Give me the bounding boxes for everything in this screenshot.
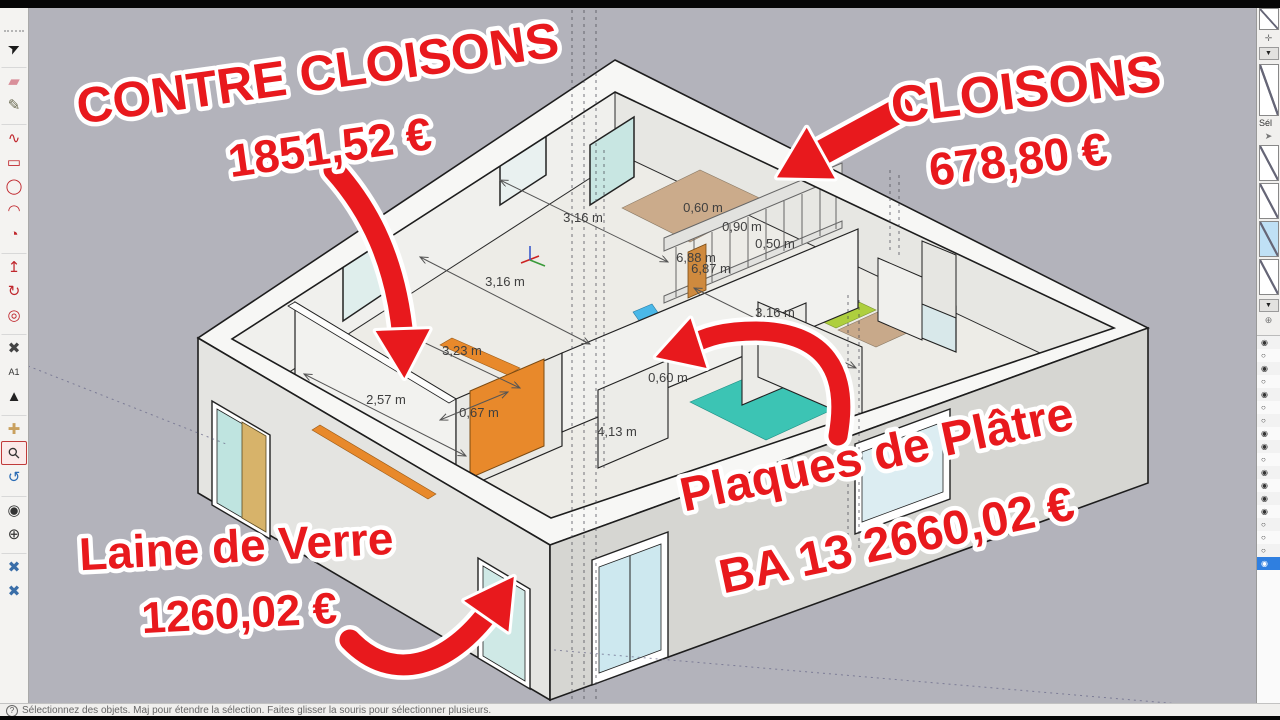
push-pull-icon: ↥: [8, 260, 21, 275]
dimension-label: 0,60 m: [648, 370, 688, 385]
tray-thumbnail[interactable]: [1259, 8, 1279, 30]
move-icon: ✛: [1265, 32, 1273, 45]
scene-thumbnail-3[interactable]: [1259, 221, 1279, 257]
zoom-icon: ⚲: [5, 444, 23, 462]
circle-icon: ◯: [6, 179, 23, 194]
arc-icon: ◠: [7, 203, 20, 218]
tag-row-13[interactable]: ◉: [1257, 492, 1280, 505]
position-camera-tool[interactable]: ⊕: [1, 522, 27, 546]
tape-measure-tool[interactable]: ✖: [1, 334, 27, 360]
large-tool-set-toolbar: ➤▰✎∿▭◯◠◔↥↻◎✖A1▲✚⚲↺◉⊕✖✖: [0, 8, 29, 706]
circle-tool[interactable]: ◯: [1, 174, 27, 198]
pan-icon: ✚: [8, 422, 21, 437]
eye-visible-icon[interactable]: ◉: [1261, 442, 1268, 451]
tag-row-6[interactable]: ○: [1257, 401, 1280, 414]
eye-visible-icon[interactable]: ◉: [1261, 364, 1268, 373]
dimension-label: 3,23 m: [442, 343, 482, 358]
tag-row-12[interactable]: ◉: [1257, 479, 1280, 492]
annotation-price: 1260,02 €: [140, 584, 338, 643]
tag-row-1[interactable]: ◉: [1257, 336, 1280, 349]
position-camera-icon: ⊕: [8, 527, 21, 542]
tag-row-2[interactable]: ○: [1257, 349, 1280, 362]
eye-hidden-icon[interactable]: ○: [1261, 520, 1266, 529]
rectangle-icon: ▭: [7, 155, 21, 170]
dimension-label: 0,67 m: [459, 405, 499, 420]
eraser-icon: ▰: [8, 74, 20, 89]
tag-row-15[interactable]: ○: [1257, 518, 1280, 531]
eraser-tool[interactable]: ▰: [1, 67, 27, 93]
tag-row-11[interactable]: ◉: [1257, 466, 1280, 479]
eye-visible-icon[interactable]: ◉: [1261, 507, 1268, 516]
annotation-price: 678,80 €: [926, 122, 1110, 195]
eye-hidden-icon[interactable]: ○: [1261, 416, 1266, 425]
tag-row-7[interactable]: ○: [1257, 414, 1280, 427]
tray-dropdown-button[interactable]: ▼: [1259, 47, 1279, 60]
dimension-label: 2,57 m: [366, 392, 406, 407]
pie-tool[interactable]: ◔: [1, 222, 27, 246]
tape-measure-icon: ✖: [8, 341, 21, 356]
paint-icon: ✎: [8, 98, 21, 113]
eye-visible-icon[interactable]: ◉: [1261, 468, 1268, 477]
bottom-letterbox-bar: [0, 716, 1280, 720]
sketchup-window: 3,16 m3,16 m3,16 m0,60 m0,90 m0,50 m6,88…: [0, 0, 1280, 720]
section-plane-icon: ✖: [8, 560, 21, 575]
status-bar: ? Sélectionnez des objets. Maj pour éten…: [0, 703, 1280, 716]
tags-visibility-list: ◉○◉○◉○○◉◉○◉◉◉◉○○○◉: [1257, 335, 1280, 706]
zoom-tool[interactable]: ⚲: [1, 441, 27, 465]
dimension-label: 3,16 m: [485, 274, 525, 289]
freehand-line-tool[interactable]: ∿: [1, 124, 27, 150]
tag-row-16[interactable]: ○: [1257, 531, 1280, 544]
push-pull-tool[interactable]: ↥: [1, 253, 27, 279]
dimension-label: 0,60 m: [683, 200, 723, 215]
tag-row-4[interactable]: ○: [1257, 375, 1280, 388]
eye-visible-icon[interactable]: ◉: [1261, 481, 1268, 490]
eye-visible-icon[interactable]: ◉: [1261, 390, 1268, 399]
section-plane-tool[interactable]: ✖: [1, 553, 27, 579]
tag-row-17[interactable]: ○: [1257, 544, 1280, 557]
annotation-cloisons: CLOISONS 678,80 €: [888, 45, 1165, 196]
select-tool[interactable]: ➤: [1, 36, 27, 60]
annotation-title: CONTRE CLOISONS: [73, 12, 562, 135]
eye-hidden-icon[interactable]: ○: [1261, 546, 1266, 555]
eye-hidden-icon[interactable]: ○: [1261, 377, 1266, 386]
section-settings-icon: ✖: [8, 584, 21, 599]
look-around-tool[interactable]: ◉: [1, 496, 27, 522]
text-icon: A1: [8, 368, 19, 377]
dimension-label: 0,50 m: [755, 236, 795, 251]
circle-plus-icon[interactable]: ⊕: [1265, 314, 1273, 327]
tag-row-10[interactable]: ○: [1257, 453, 1280, 466]
eye-visible-icon[interactable]: ◉: [1261, 494, 1268, 503]
dimension-label: 3,16 m: [563, 210, 603, 225]
pan-tool[interactable]: ✚: [1, 415, 27, 441]
eye-hidden-icon[interactable]: ○: [1261, 403, 1266, 412]
model-viewport[interactable]: 3,16 m3,16 m3,16 m0,60 m0,90 m0,50 m6,88…: [0, 0, 1280, 720]
cursor-icon: ➤: [1265, 130, 1273, 143]
eye-hidden-icon[interactable]: ○: [1261, 455, 1266, 464]
tray-dropdown-button-2[interactable]: ▼: [1259, 299, 1279, 312]
patio-door-tan: [242, 422, 266, 532]
eye-visible-icon[interactable]: ◉: [1261, 429, 1268, 438]
dimension-label: 0,90 m: [722, 219, 762, 234]
tag-row-3[interactable]: ◉: [1257, 362, 1280, 375]
dimension-label: 4,13 m: [597, 424, 637, 439]
dimension-label: 6,87 m: [691, 261, 731, 276]
top-letterbox-bar: [0, 0, 1280, 8]
orbit-tool[interactable]: ↺: [1, 465, 27, 489]
help-circle-icon[interactable]: ?: [6, 705, 18, 716]
toolbar-grip[interactable]: [4, 30, 24, 32]
eye-hidden-icon[interactable]: ○: [1261, 351, 1266, 360]
axes-tool[interactable]: ▲: [1, 384, 27, 408]
text-tool[interactable]: A1: [1, 360, 27, 384]
tag-row-14[interactable]: ◉: [1257, 505, 1280, 518]
tag-row-5[interactable]: ◉: [1257, 388, 1280, 401]
axes-icon: ▲: [7, 389, 22, 404]
select-icon: ➤: [5, 39, 23, 58]
orbit-icon: ↺: [8, 470, 21, 485]
tag-row-8[interactable]: ◉: [1257, 427, 1280, 440]
eye-visible-icon[interactable]: ◉: [1261, 338, 1268, 347]
section-settings-tool[interactable]: ✖: [1, 579, 27, 603]
scene-thumbnail-1[interactable]: [1259, 145, 1279, 181]
scene-thumbnail-4[interactable]: [1259, 259, 1279, 295]
arc-tool[interactable]: ◠: [1, 198, 27, 222]
follow-me-tool[interactable]: ↻: [1, 279, 27, 303]
scene-thumbnails: [1259, 143, 1279, 297]
follow-me-icon: ↻: [8, 284, 21, 299]
offset-tool[interactable]: ◎: [1, 303, 27, 327]
pie-icon: ◔: [9, 227, 18, 242]
offset-icon: ◎: [7, 308, 20, 323]
freehand-line-icon: ∿: [8, 131, 21, 146]
eye-visible-icon[interactable]: ◉: [1261, 559, 1268, 568]
tag-row-9[interactable]: ◉: [1257, 440, 1280, 453]
component-preview-thumbnail[interactable]: [1259, 64, 1279, 116]
eye-hidden-icon[interactable]: ○: [1261, 533, 1266, 542]
tray-section-label: Sél: [1257, 118, 1272, 130]
paint-tool[interactable]: ✎: [1, 93, 27, 117]
right-tray-panel: ✛ ▼ Sél ➤ ▼ ⊕ ◉○◉○◉○○◉◉○◉◉◉◉○○○◉: [1256, 8, 1280, 706]
status-hint-text: Sélectionnez des objets. Maj pour étendr…: [22, 705, 491, 716]
look-around-icon: ◉: [7, 503, 20, 518]
rectangle-tool[interactable]: ▭: [1, 150, 27, 174]
annotation-title: CLOISONS: [888, 45, 1165, 136]
tag-row-18[interactable]: ◉: [1257, 557, 1280, 570]
scene-thumbnail-2[interactable]: [1259, 183, 1279, 219]
